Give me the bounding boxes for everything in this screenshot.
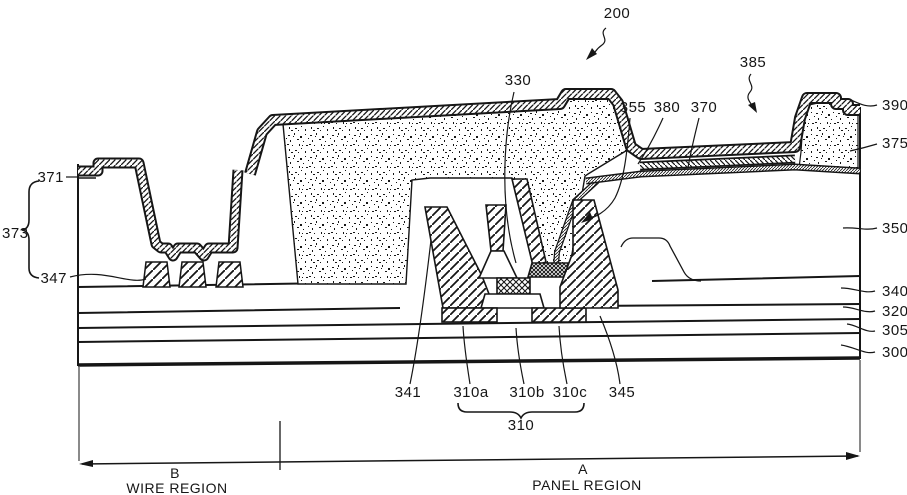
active-mesa	[481, 294, 544, 308]
gate-column	[486, 205, 506, 251]
source-electrode-341	[425, 207, 489, 308]
dimension-line	[82, 456, 858, 464]
region-labels: B WIRE REGION A PANEL REGION	[126, 461, 641, 495]
leader-345	[600, 316, 620, 384]
channel-block	[497, 278, 530, 294]
cross-section-figure: 200 330 385 355 380 370 390 375 350 340 …	[0, 0, 907, 495]
callout-310: 310	[508, 417, 535, 434]
region-a-title: PANEL REGION	[532, 477, 641, 493]
callout-200: 200	[604, 5, 631, 22]
callout-375: 375	[882, 135, 907, 152]
callout-370: 370	[691, 99, 718, 116]
leader-300	[841, 345, 875, 353]
callout-345: 345	[609, 384, 636, 401]
callout-340: 340	[882, 283, 907, 300]
wire-region-structure	[78, 163, 243, 287]
callout-373: 373	[2, 225, 29, 242]
callout-320: 320	[882, 303, 907, 320]
leader-347	[70, 274, 146, 280]
callout-371: 371	[37, 169, 64, 186]
arrowhead-385	[748, 102, 757, 113]
arrowhead-200	[586, 48, 597, 60]
leader-lines	[66, 28, 877, 384]
arrowhead-dim-right	[846, 452, 860, 460]
callout-310c: 310c	[553, 384, 588, 401]
gate-insulator-trap	[479, 251, 517, 278]
brace-310	[458, 403, 584, 418]
callout-341: 341	[395, 384, 422, 401]
region-a-letter: A	[578, 461, 588, 477]
callout-300: 300	[882, 344, 907, 361]
region-310c	[532, 308, 586, 322]
leader-310c	[559, 326, 567, 384]
callout-355: 355	[620, 99, 647, 116]
wire-layer-371	[78, 163, 238, 256]
callout-305: 305	[882, 322, 907, 339]
region-dimension	[79, 360, 860, 470]
callout-330: 330	[505, 72, 532, 89]
callout-385: 385	[740, 54, 767, 71]
leader-310a	[463, 326, 470, 384]
arrowhead-dim-left	[79, 460, 93, 467]
region-b-title: WIRE REGION	[126, 480, 227, 495]
callout-380: 380	[654, 99, 681, 116]
wire-bumps-347	[143, 262, 243, 287]
leader-340	[841, 288, 875, 292]
callout-310b: 310b	[509, 384, 544, 401]
callout-350: 350	[882, 220, 907, 237]
region-310a	[442, 308, 497, 322]
callout-310a: 310a	[453, 384, 489, 401]
patent-figure-page: 200 330 385 355 380 370 390 375 350 340 …	[0, 0, 907, 495]
planarization-step	[621, 238, 701, 281]
region-b-letter: B	[170, 465, 180, 481]
callout-390: 390	[882, 97, 907, 114]
callout-texts: 200 330 385 355 380 370 390 375 350 340 …	[2, 5, 907, 434]
callout-347: 347	[40, 270, 67, 287]
